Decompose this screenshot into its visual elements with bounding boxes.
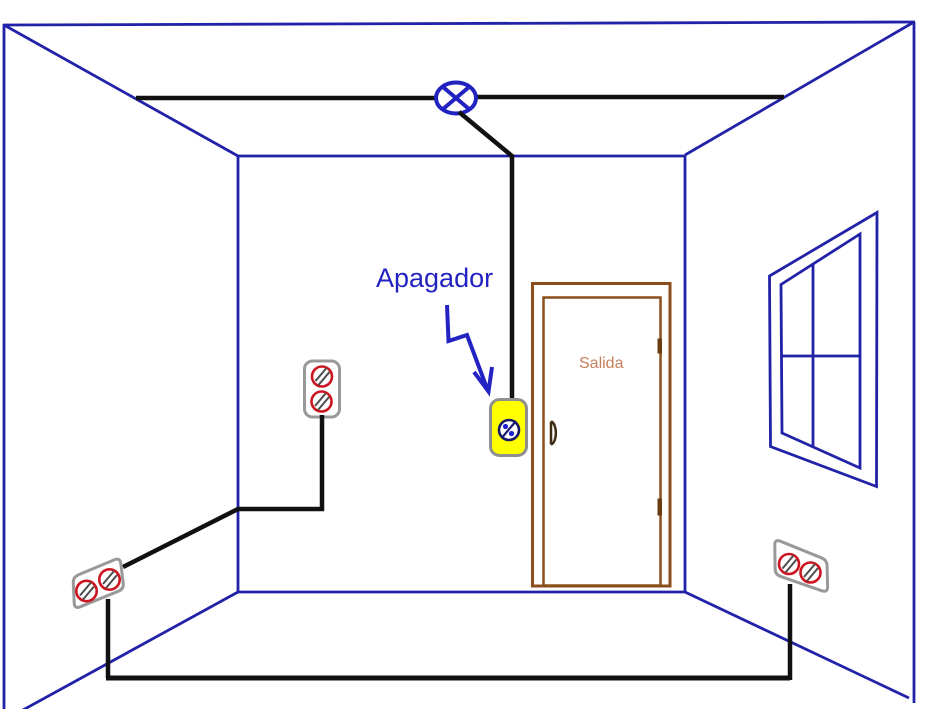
svg-text:Apagador: Apagador [376,263,493,293]
svg-text:Salida: Salida [579,355,624,372]
